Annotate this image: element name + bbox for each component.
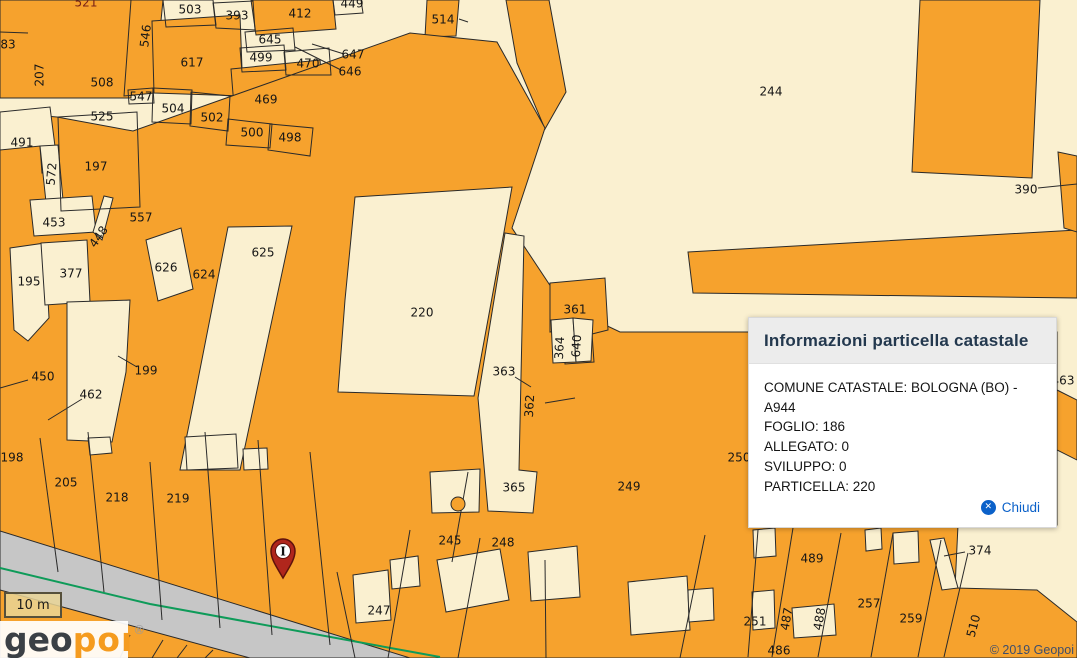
parcel-label-547: 547 (130, 90, 153, 104)
parcel-label-450: 450 (32, 370, 55, 384)
parcel-label-247: 247 (368, 604, 391, 618)
parcel-label-374: 374 (969, 544, 992, 558)
map-dot (451, 497, 465, 511)
building-a[interactable] (88, 437, 112, 455)
parcel-label-504: 504 (162, 102, 185, 116)
parcel-label-500: 500 (241, 126, 264, 140)
parcel-label-220: 220 (411, 306, 434, 320)
parcel-label-259: 259 (900, 612, 923, 626)
parcel-label-251: 251 (744, 615, 767, 629)
circle-x-icon[interactable]: ✕ (981, 500, 996, 515)
parcel-label-365: 365 (503, 481, 526, 495)
map-scale-bar: 10 m (4, 592, 62, 618)
building-j[interactable] (688, 588, 714, 622)
parcel-label-572: 572 (44, 162, 60, 186)
geopoi-map-viewer: 5218320750854650339341264549947064764661… (0, 0, 1077, 658)
parcel-label-646: 646 (339, 65, 362, 79)
parcel-label-640: 640 (569, 334, 584, 358)
parcel-info-body: COMUNE CATASTALE: BOLOGNA (BO) - A944 FO… (749, 364, 1056, 496)
parcel-label-198: 198 (1, 451, 24, 465)
parcel-label-83: 83 (0, 38, 15, 52)
parcel-label-647: 647 (342, 48, 365, 62)
copyright-notice: © 2019 Geopoi (990, 643, 1074, 657)
parcel-label-207: 207 (33, 64, 47, 87)
parcel-label-195: 195 (18, 275, 41, 289)
parcel-label-377: 377 (60, 267, 83, 281)
parcel-label-645: 645 (259, 33, 282, 47)
parcel-label-503: 503 (179, 3, 202, 17)
parcel-label-462: 462 (80, 388, 103, 402)
parcel-label-197: 197 (85, 160, 108, 174)
info-line-particella: PARTICELLA: 220 (764, 477, 1041, 497)
parcel-label-362: 362 (522, 394, 537, 418)
parcel-label-521: 521 (75, 0, 98, 10)
building-n[interactable] (865, 528, 882, 551)
parcel-label-525: 525 (91, 110, 114, 124)
parcel-label-617: 617 (181, 56, 204, 70)
parcel-label-491: 491 (11, 136, 34, 150)
parcel-info-title: Informazioni particella catastale (764, 331, 1029, 351)
parcel-label-249: 249 (618, 480, 641, 494)
parcel-label-489: 489 (801, 552, 824, 566)
building-b[interactable] (185, 434, 238, 470)
info-line-allegato: ALLEGATO: 0 (764, 437, 1041, 457)
info-line-comune: COMUNE CATASTALE: BOLOGNA (BO) - A944 (764, 378, 1041, 417)
scale-label: 10 m (16, 598, 49, 613)
close-label[interactable]: Chiudi (1002, 500, 1040, 515)
parcel-label-508: 508 (91, 76, 114, 90)
parcel-label-219: 219 (167, 492, 190, 506)
parcel-label-453: 453 (43, 216, 66, 230)
parcel-label-412: 412 (289, 7, 312, 21)
parcel-info-panel: Informazioni particella catastale COMUNE… (748, 317, 1057, 528)
parcel-label-393: 393 (226, 9, 249, 23)
geopoi-logo: geo poı ® (0, 621, 128, 658)
marker-pin-letter: I (280, 545, 286, 559)
building-244[interactable] (912, 0, 1040, 178)
parcel-label-257: 257 (858, 597, 881, 611)
parcel-label-469: 469 (255, 93, 278, 107)
building-i[interactable] (628, 576, 690, 635)
building-e[interactable] (437, 549, 509, 612)
parcel-label-248: 248 (492, 536, 515, 550)
parcel-label-470: 470 (297, 57, 320, 71)
parcel-label-244: 244 (760, 85, 783, 99)
parcel-463-sliver[interactable] (1057, 390, 1077, 460)
parcel-label-626: 626 (155, 261, 178, 275)
parcel-label-449: 449 (341, 0, 364, 11)
building-o[interactable] (893, 531, 919, 564)
parcel-label-557: 557 (130, 211, 153, 225)
logo-text-geo: geo (4, 625, 73, 655)
parcel-label-245: 245 (439, 534, 462, 548)
building-c[interactable] (243, 448, 268, 470)
parcel-info-header: Informazioni particella catastale (749, 318, 1056, 364)
parcel-label-625: 625 (252, 246, 275, 260)
building-h[interactable] (528, 546, 580, 601)
parcel-label-218: 218 (106, 491, 129, 505)
info-line-foglio: FOGLIO: 186 (764, 417, 1041, 437)
parcel-label-499: 499 (250, 51, 273, 65)
parcel-label-546: 546 (137, 24, 154, 48)
registered-mark: ® (133, 623, 145, 637)
logo-text-poi: poı (73, 625, 134, 655)
parcel-label-364: 364 (552, 336, 567, 360)
parcel-label-486: 486 (768, 644, 791, 658)
parcel-label-498: 498 (279, 131, 302, 145)
parcel-label-502: 502 (201, 111, 224, 125)
parcel-label-363: 363 (493, 365, 516, 379)
parcel-label-624: 624 (193, 268, 216, 282)
parcel-label-361: 361 (564, 303, 587, 317)
parcel-label-205: 205 (55, 476, 78, 490)
parcel-label-514: 514 (432, 13, 455, 27)
parcel-label-199: 199 (135, 364, 158, 378)
close-button[interactable]: ✕ Chiudi (981, 500, 1040, 515)
parcel-label-390: 390 (1015, 183, 1038, 197)
info-line-sviluppo: SVILUPPO: 0 (764, 457, 1041, 477)
